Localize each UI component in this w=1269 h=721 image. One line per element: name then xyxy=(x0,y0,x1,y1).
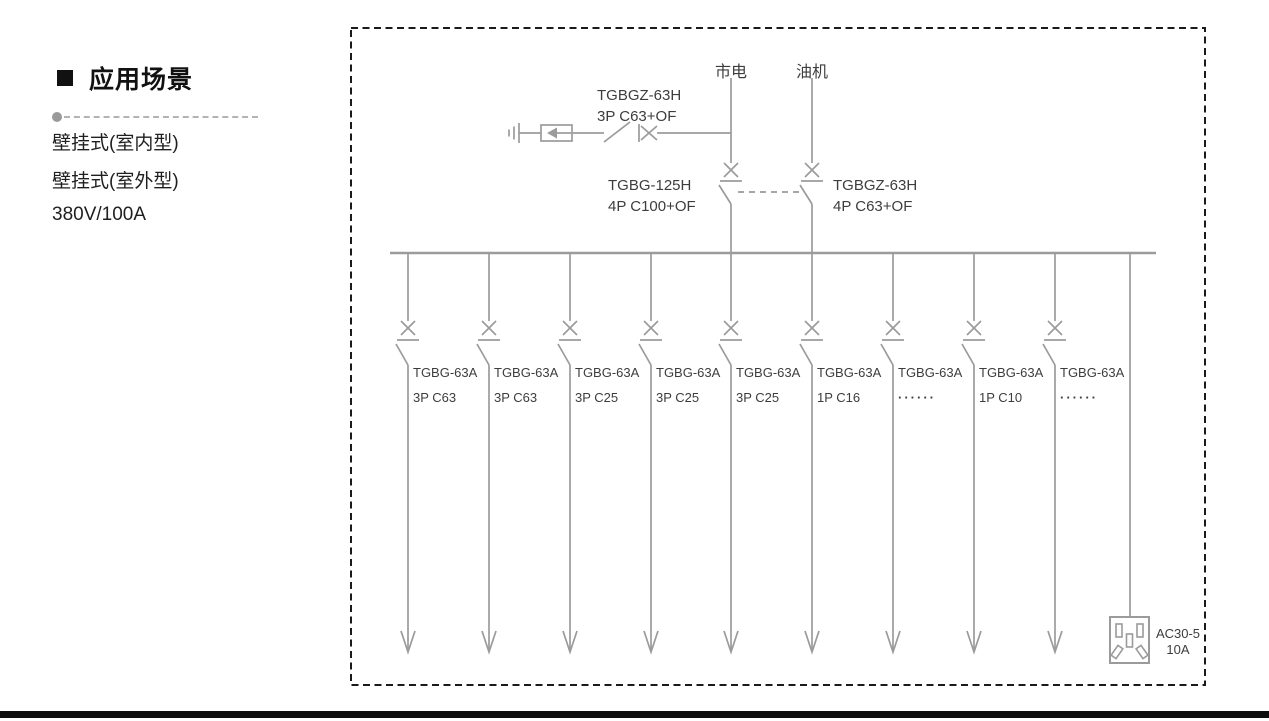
generator-breaker-label: TGBGZ-63H 4P C63+OF xyxy=(833,175,917,217)
branch-label: TGBG-63A 3P C63 xyxy=(494,360,558,410)
branch-label: TGBG-63A 3P C25 xyxy=(656,360,720,410)
spd-breaker-spec: 3P C63+OF xyxy=(597,106,681,127)
mains-source-label: 市电 xyxy=(715,58,747,82)
branch-label: TGBG-63A ······ xyxy=(1060,360,1124,410)
branch-spec: 3P C63 xyxy=(413,385,477,410)
diagram-border xyxy=(351,28,1205,685)
branch-model: TGBG-63A xyxy=(413,360,477,385)
branch-feeder xyxy=(881,253,904,652)
branch-feeder xyxy=(477,253,500,652)
spd-breaker-label: TGBGZ-63H 3P C63+OF xyxy=(597,85,681,127)
bottom-divider-bar xyxy=(0,711,1269,718)
branch-spec: 3P C25 xyxy=(736,385,800,410)
generator-source-label: 油机 xyxy=(796,58,828,82)
branch-feeder xyxy=(719,253,742,652)
branch-model: TGBG-63A xyxy=(898,360,962,385)
branch-spec: 3P C25 xyxy=(656,385,720,410)
mains-breaker-label: TGBG-125H 4P C100+OF xyxy=(608,175,696,217)
branch-breaker-icon xyxy=(800,321,823,365)
branch-breaker-icon xyxy=(396,321,419,365)
ground-icon xyxy=(509,123,519,143)
branch-feeder xyxy=(962,253,985,652)
branch-feeder xyxy=(639,253,662,652)
branch-model: TGBG-63A xyxy=(817,360,881,385)
branch-spec: ······ xyxy=(1060,385,1124,410)
page: 应用场景 壁挂式(室内型) 壁挂式(室外型) 380V/100A xyxy=(0,0,1269,721)
branch-breaker-icon xyxy=(719,321,742,365)
branch-model: TGBG-63A xyxy=(575,360,639,385)
branch-breaker-icon xyxy=(962,321,985,365)
branch-label: TGBG-63A 3P C63 xyxy=(413,360,477,410)
socket-icon xyxy=(1110,617,1149,663)
branch-spec: 1P C10 xyxy=(979,385,1043,410)
mains-breaker-model: TGBG-125H xyxy=(608,175,696,196)
branch-breaker-icon xyxy=(639,321,662,365)
branch-label: TGBG-63A 3P C25 xyxy=(575,360,639,410)
branch-feeder xyxy=(800,253,823,652)
branch-spec: 3P C63 xyxy=(494,385,558,410)
branch-spec: ······ xyxy=(898,385,962,410)
mains-feeder xyxy=(719,78,742,253)
generator-feeder xyxy=(800,78,823,253)
branch-model: TGBG-63A xyxy=(979,360,1043,385)
branch-label: TGBG-63A ······ xyxy=(898,360,962,410)
branch-label: TGBG-63A 3P C25 xyxy=(736,360,800,410)
branch-model: TGBG-63A xyxy=(1060,360,1124,385)
branch-feeder xyxy=(396,253,419,652)
generator-breaker-model: TGBGZ-63H xyxy=(833,175,917,196)
socket-feeder xyxy=(1110,253,1149,663)
socket-rating: 10A xyxy=(1150,642,1206,658)
mains-breaker-spec: 4P C100+OF xyxy=(608,196,696,217)
branch-feeder xyxy=(1043,253,1066,652)
spd-breaker-model: TGBGZ-63H xyxy=(597,85,681,106)
generator-breaker-icon xyxy=(800,163,823,204)
spd-icon xyxy=(541,125,572,141)
branch-model: TGBG-63A xyxy=(736,360,800,385)
branch-label: TGBG-63A 1P C10 xyxy=(979,360,1043,410)
branch-spec: 3P C25 xyxy=(575,385,639,410)
socket-model: AC30-5 xyxy=(1150,626,1206,642)
branch-model: TGBG-63A xyxy=(656,360,720,385)
branch-spec: 1P C16 xyxy=(817,385,881,410)
generator-breaker-spec: 4P C63+OF xyxy=(833,196,917,217)
branch-label: TGBG-63A 1P C16 xyxy=(817,360,881,410)
branch-breaker-icon xyxy=(558,321,581,365)
branch-breaker-icon xyxy=(1043,321,1066,365)
branch-breaker-icon xyxy=(881,321,904,365)
branch-model: TGBG-63A xyxy=(494,360,558,385)
socket-label: AC30-5 10A xyxy=(1150,626,1206,658)
mains-breaker-icon xyxy=(719,163,742,204)
branch-breaker-icon xyxy=(477,321,500,365)
branch-feeder xyxy=(558,253,581,652)
